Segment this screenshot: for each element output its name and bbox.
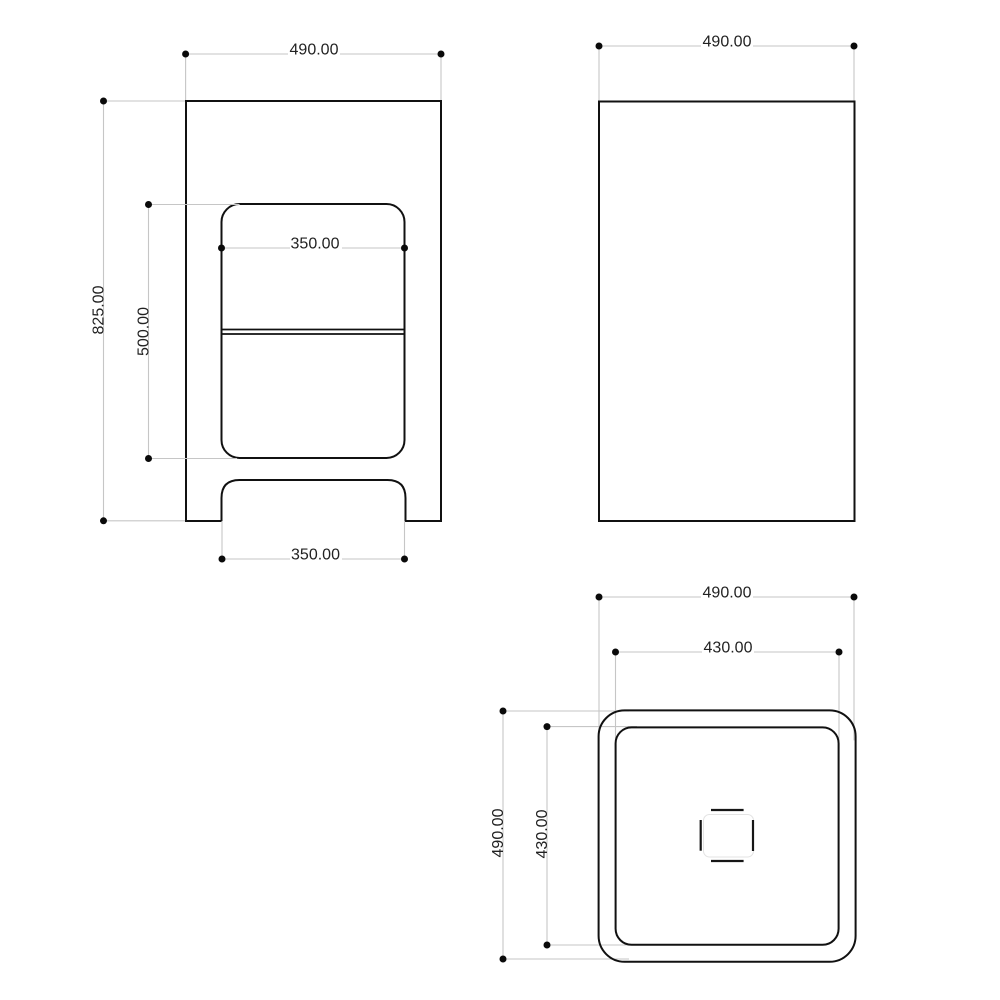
svg-text:500.00: 500.00 — [136, 307, 153, 356]
svg-text:490.00: 490.00 — [703, 585, 752, 602]
svg-text:350.00: 350.00 — [291, 547, 340, 564]
svg-text:430.00: 430.00 — [534, 809, 551, 858]
svg-text:490.00: 490.00 — [290, 42, 339, 59]
svg-text:430.00: 430.00 — [704, 640, 753, 657]
svg-text:490.00: 490.00 — [703, 34, 752, 51]
svg-text:825.00: 825.00 — [91, 285, 108, 334]
svg-text:350.00: 350.00 — [291, 236, 340, 253]
svg-text:490.00: 490.00 — [490, 808, 507, 857]
